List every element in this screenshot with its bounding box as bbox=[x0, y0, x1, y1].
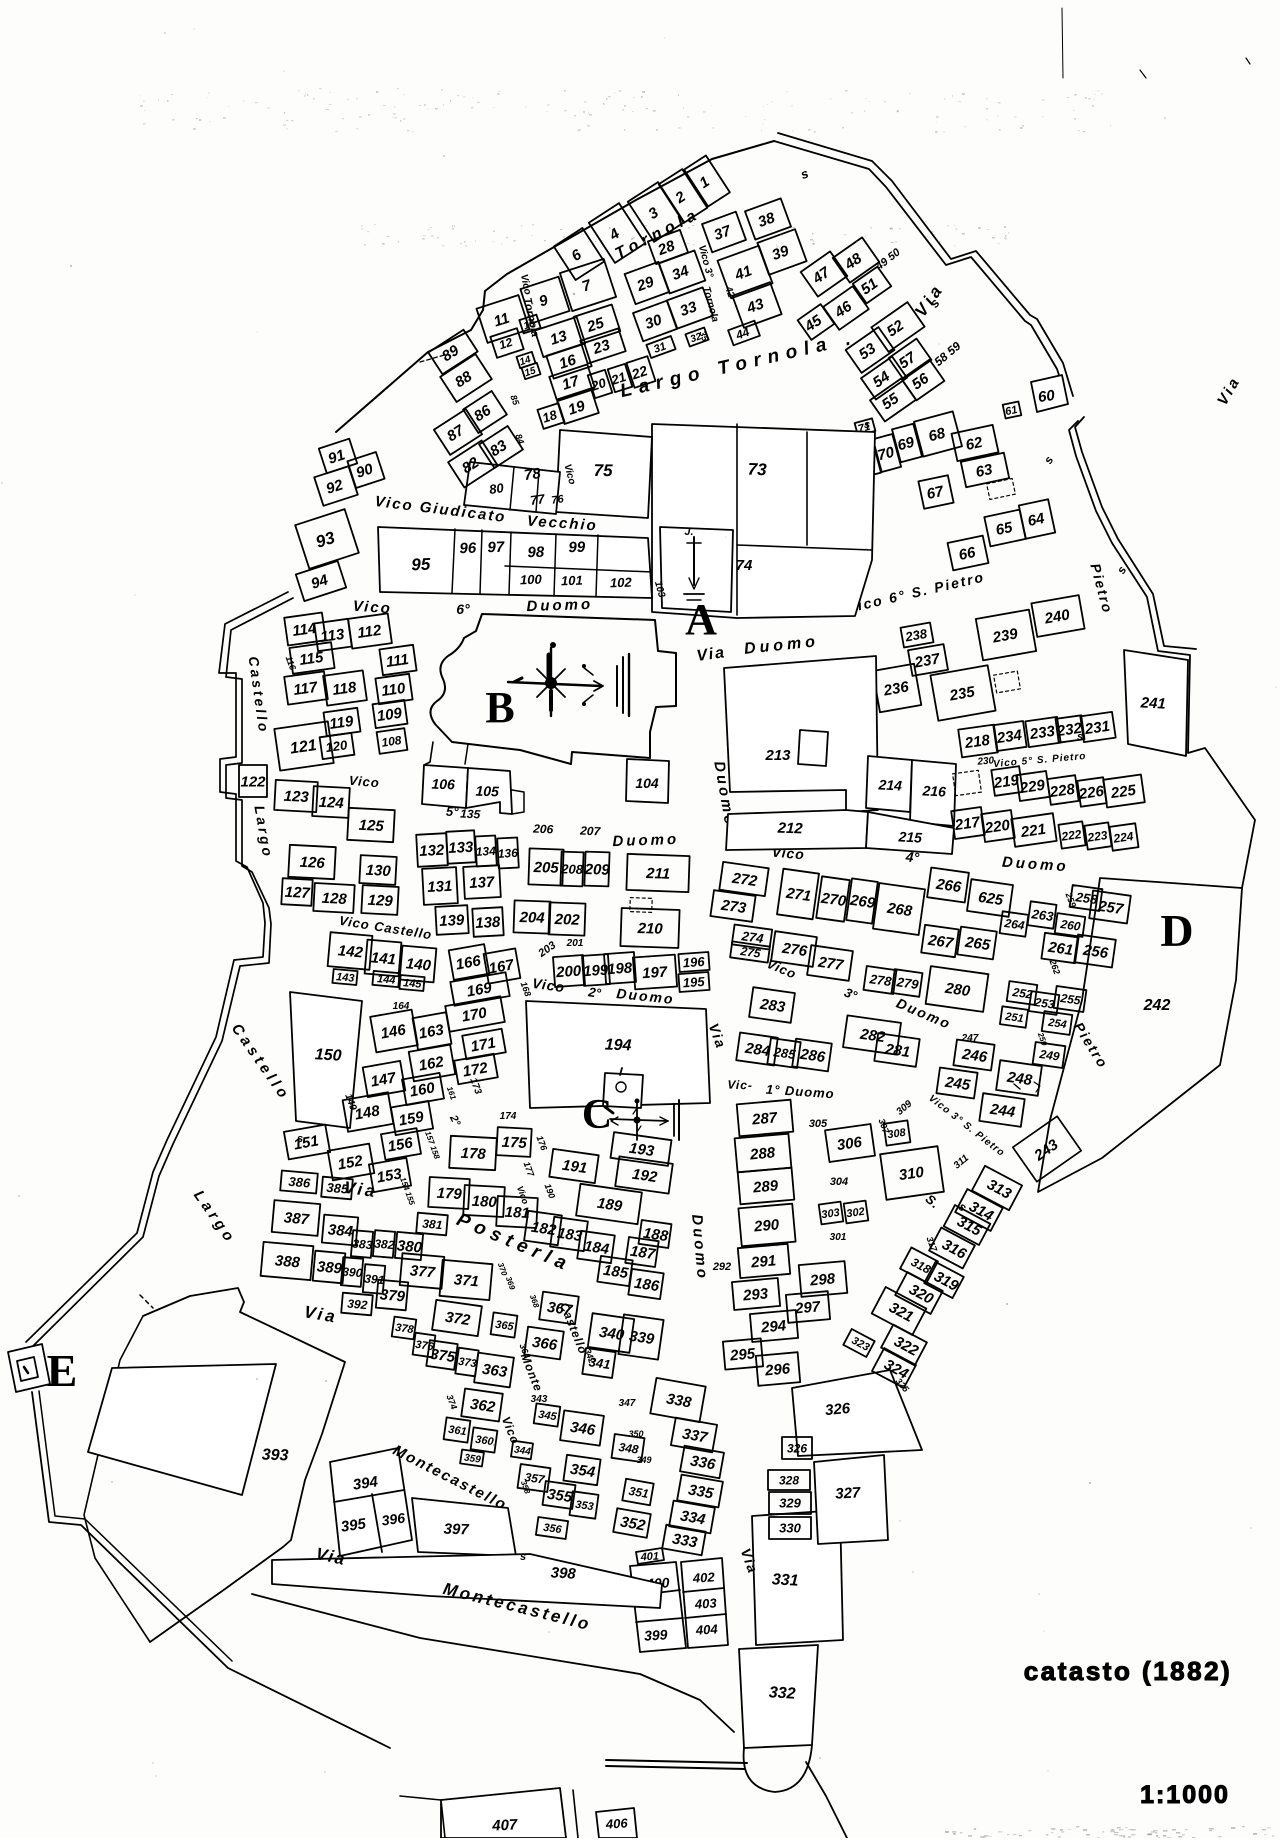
svg-text:404: 404 bbox=[695, 1621, 719, 1637]
svg-text:382: 382 bbox=[374, 1236, 395, 1252]
svg-text:D: D bbox=[1160, 905, 1193, 956]
svg-text:209: 209 bbox=[583, 861, 610, 879]
svg-text:s: s bbox=[864, 419, 870, 431]
svg-text:383: 383 bbox=[352, 1236, 373, 1252]
svg-text:261: 261 bbox=[1046, 939, 1074, 959]
svg-text:296: 296 bbox=[763, 1360, 791, 1379]
svg-text:179: 179 bbox=[436, 1185, 463, 1203]
svg-text:115: 115 bbox=[298, 649, 325, 669]
svg-text:255: 255 bbox=[1059, 991, 1082, 1008]
svg-text:264: 264 bbox=[1003, 916, 1026, 933]
svg-text:381: 381 bbox=[422, 1216, 443, 1232]
svg-text:134: 134 bbox=[475, 844, 496, 859]
svg-text:138: 138 bbox=[475, 914, 502, 932]
svg-text:387: 387 bbox=[283, 1209, 310, 1228]
svg-text:98: 98 bbox=[527, 544, 545, 562]
svg-text:123: 123 bbox=[283, 788, 310, 806]
svg-text:201: 201 bbox=[566, 938, 584, 949]
svg-text:355: 355 bbox=[546, 1486, 574, 1506]
svg-text:326: 326 bbox=[824, 1400, 851, 1419]
svg-text:200: 200 bbox=[555, 963, 583, 982]
svg-text:349: 349 bbox=[636, 1455, 651, 1465]
svg-text:197: 197 bbox=[642, 964, 669, 983]
svg-text:328: 328 bbox=[779, 1473, 799, 1487]
svg-text:329: 329 bbox=[779, 1496, 801, 1511]
svg-text:361: 361 bbox=[447, 1424, 467, 1438]
svg-text:174: 174 bbox=[500, 1111, 517, 1122]
svg-text:125: 125 bbox=[358, 817, 385, 835]
svg-text:241: 241 bbox=[1139, 694, 1166, 712]
svg-text:178: 178 bbox=[460, 1145, 487, 1163]
svg-text:215: 215 bbox=[897, 828, 922, 845]
svg-text:301: 301 bbox=[830, 1232, 847, 1243]
svg-text:60: 60 bbox=[1037, 387, 1057, 406]
svg-text:326: 326 bbox=[787, 1441, 807, 1455]
svg-text:289: 289 bbox=[751, 1177, 779, 1196]
svg-text:210: 210 bbox=[636, 920, 663, 938]
svg-text:192: 192 bbox=[631, 1166, 659, 1186]
svg-text:260: 260 bbox=[1059, 917, 1082, 934]
svg-text:366: 366 bbox=[531, 1334, 559, 1354]
svg-text:350: 350 bbox=[628, 1429, 643, 1439]
svg-text:186: 186 bbox=[633, 1275, 661, 1295]
svg-text:E: E bbox=[47, 1345, 78, 1396]
svg-text:164: 164 bbox=[393, 1001, 410, 1012]
svg-text:398: 398 bbox=[550, 1564, 577, 1582]
svg-text:102: 102 bbox=[610, 575, 633, 591]
svg-text:287: 287 bbox=[750, 1109, 778, 1128]
svg-text:140: 140 bbox=[405, 955, 432, 974]
svg-text:389: 389 bbox=[316, 1258, 343, 1277]
svg-text:193: 193 bbox=[628, 1140, 656, 1160]
svg-text:399: 399 bbox=[644, 1626, 668, 1643]
svg-text:343: 343 bbox=[531, 1394, 548, 1405]
svg-text:127: 127 bbox=[284, 884, 311, 902]
svg-text:78: 78 bbox=[523, 465, 543, 484]
svg-text:74: 74 bbox=[736, 557, 753, 574]
svg-text:112: 112 bbox=[356, 622, 383, 642]
svg-text:332: 332 bbox=[768, 1684, 796, 1702]
svg-text:143: 143 bbox=[336, 971, 355, 985]
svg-text:206: 206 bbox=[532, 821, 554, 836]
svg-text:205: 205 bbox=[532, 859, 559, 877]
svg-text:392: 392 bbox=[347, 1296, 368, 1312]
svg-text:128: 128 bbox=[321, 890, 348, 908]
svg-text:362: 362 bbox=[469, 1396, 497, 1416]
svg-text:117: 117 bbox=[292, 679, 319, 699]
svg-text:135: 135 bbox=[460, 806, 481, 821]
svg-text:214: 214 bbox=[877, 776, 902, 793]
svg-text:306: 306 bbox=[836, 1134, 864, 1154]
svg-text:331: 331 bbox=[771, 1571, 799, 1589]
svg-text:118: 118 bbox=[331, 679, 358, 699]
svg-text:247: 247 bbox=[961, 1033, 979, 1044]
svg-text:303: 303 bbox=[821, 1207, 841, 1221]
svg-text:131: 131 bbox=[427, 878, 453, 896]
svg-text:249: 249 bbox=[1038, 1047, 1061, 1064]
svg-text:100: 100 bbox=[520, 572, 543, 588]
svg-text:Vico: Vico bbox=[348, 773, 380, 791]
svg-text:124: 124 bbox=[318, 794, 345, 812]
svg-text:C: C bbox=[582, 1092, 612, 1138]
svg-text:344: 344 bbox=[513, 1445, 531, 1458]
svg-text:253: 253 bbox=[1033, 995, 1056, 1012]
svg-text:126: 126 bbox=[299, 854, 326, 872]
svg-text:305: 305 bbox=[809, 1118, 828, 1130]
svg-text:catasto (1882): catasto (1882) bbox=[1024, 1656, 1232, 1686]
svg-text:407: 407 bbox=[491, 1816, 519, 1834]
svg-text:275: 275 bbox=[739, 944, 762, 961]
svg-text:96: 96 bbox=[459, 540, 477, 558]
svg-text:281: 281 bbox=[883, 1041, 911, 1061]
svg-text:195: 195 bbox=[682, 974, 705, 991]
svg-text:120: 120 bbox=[325, 737, 349, 755]
svg-text:75: 75 bbox=[593, 461, 613, 480]
svg-text:204: 204 bbox=[518, 909, 545, 927]
svg-text:95: 95 bbox=[411, 555, 431, 575]
svg-text:290: 290 bbox=[752, 1216, 780, 1235]
svg-text:231: 231 bbox=[1083, 718, 1111, 738]
svg-text:394: 394 bbox=[352, 1473, 380, 1493]
svg-text:132: 132 bbox=[419, 842, 446, 860]
svg-text:208: 208 bbox=[560, 861, 584, 877]
svg-text:105: 105 bbox=[475, 783, 499, 800]
svg-text:346: 346 bbox=[569, 1419, 597, 1439]
svg-text:144: 144 bbox=[377, 973, 396, 987]
svg-text:288: 288 bbox=[748, 1144, 776, 1163]
svg-text:s: s bbox=[1077, 731, 1083, 743]
svg-text:395: 395 bbox=[340, 1515, 368, 1535]
svg-text:136: 136 bbox=[497, 846, 518, 861]
svg-text:347: 347 bbox=[619, 1398, 636, 1409]
svg-text:73: 73 bbox=[747, 460, 767, 480]
svg-text:222: 222 bbox=[1060, 827, 1083, 844]
svg-text:142: 142 bbox=[337, 942, 364, 961]
svg-text:110: 110 bbox=[380, 680, 407, 700]
svg-text:Duomo: Duomo bbox=[526, 596, 593, 615]
svg-text:291: 291 bbox=[749, 1252, 776, 1271]
svg-text:141: 141 bbox=[370, 949, 396, 968]
svg-text:137: 137 bbox=[469, 874, 496, 892]
svg-text:371: 371 bbox=[453, 1271, 479, 1290]
svg-text:213: 213 bbox=[764, 747, 791, 764]
svg-text:310: 310 bbox=[898, 1164, 926, 1184]
svg-text:297: 297 bbox=[793, 1298, 821, 1317]
svg-text:294: 294 bbox=[759, 1317, 787, 1336]
svg-text:109: 109 bbox=[376, 705, 404, 725]
svg-text:185: 185 bbox=[602, 1262, 630, 1282]
svg-text:293: 293 bbox=[741, 1285, 769, 1304]
svg-text:61: 61 bbox=[1004, 404, 1018, 418]
svg-text:97: 97 bbox=[487, 539, 505, 557]
svg-text:1:1000: 1:1000 bbox=[1140, 1781, 1230, 1809]
svg-text:180: 180 bbox=[471, 1193, 498, 1211]
svg-text:367: 367 bbox=[546, 1299, 574, 1319]
svg-text:212: 212 bbox=[776, 820, 803, 838]
svg-text:386: 386 bbox=[288, 1174, 312, 1191]
svg-text:377: 377 bbox=[409, 1262, 436, 1281]
svg-text:133: 133 bbox=[448, 839, 475, 857]
svg-text:202: 202 bbox=[553, 911, 580, 929]
svg-text:330: 330 bbox=[779, 1521, 801, 1536]
svg-text:388: 388 bbox=[274, 1252, 301, 1271]
svg-text:403: 403 bbox=[694, 1595, 718, 1611]
svg-text:198: 198 bbox=[607, 960, 634, 979]
svg-text:108: 108 bbox=[381, 733, 403, 750]
svg-text:175: 175 bbox=[501, 1134, 528, 1152]
svg-text:302: 302 bbox=[846, 1206, 866, 1220]
svg-text:77: 77 bbox=[529, 491, 546, 508]
svg-text:139: 139 bbox=[439, 912, 466, 930]
svg-text:363: 363 bbox=[481, 1361, 509, 1381]
svg-text:Duomo: Duomo bbox=[612, 831, 679, 850]
svg-text:327: 327 bbox=[835, 1484, 862, 1502]
svg-text:194: 194 bbox=[605, 1037, 632, 1055]
svg-text:223: 223 bbox=[1086, 828, 1109, 845]
svg-text:189: 189 bbox=[596, 1195, 624, 1215]
svg-text:150: 150 bbox=[314, 1046, 342, 1064]
svg-text:304: 304 bbox=[830, 1176, 848, 1188]
svg-text:406: 406 bbox=[605, 1815, 629, 1831]
svg-text:221: 221 bbox=[1019, 821, 1047, 841]
svg-text:384: 384 bbox=[327, 1221, 354, 1240]
svg-text:625: 625 bbox=[977, 889, 1005, 909]
svg-text:397: 397 bbox=[443, 1521, 469, 1539]
svg-text:390: 390 bbox=[342, 1264, 363, 1280]
svg-text:A: A bbox=[685, 595, 717, 644]
svg-text:216: 216 bbox=[921, 782, 946, 799]
svg-text:393: 393 bbox=[262, 1447, 289, 1465]
svg-text:373: 373 bbox=[457, 1356, 477, 1370]
svg-text:402: 402 bbox=[692, 1569, 716, 1585]
svg-text:s: s bbox=[297, 1133, 303, 1145]
svg-text:295: 295 bbox=[728, 1345, 756, 1364]
svg-text:375: 375 bbox=[429, 1346, 457, 1366]
svg-text:188: 188 bbox=[642, 1225, 670, 1245]
svg-text:130: 130 bbox=[365, 862, 392, 880]
svg-text:353: 353 bbox=[574, 1499, 594, 1513]
svg-text:99: 99 bbox=[568, 539, 586, 557]
svg-text:145: 145 bbox=[403, 977, 423, 991]
svg-text:129: 129 bbox=[367, 892, 394, 910]
svg-text:242: 242 bbox=[1143, 997, 1171, 1014]
svg-text:401: 401 bbox=[639, 1551, 659, 1564]
svg-text:230: 230 bbox=[976, 755, 995, 768]
svg-text:271: 271 bbox=[784, 885, 812, 905]
svg-text:379: 379 bbox=[379, 1286, 406, 1305]
svg-text:122: 122 bbox=[240, 773, 266, 790]
svg-text:B: B bbox=[485, 683, 514, 732]
svg-text:396: 396 bbox=[381, 1509, 407, 1528]
svg-text:385: 385 bbox=[326, 1180, 350, 1197]
svg-text:101: 101 bbox=[561, 573, 583, 589]
svg-text:s: s bbox=[520, 1551, 526, 1563]
svg-text:207: 207 bbox=[579, 823, 602, 838]
svg-text:211: 211 bbox=[645, 865, 671, 883]
svg-text:298: 298 bbox=[808, 1270, 836, 1289]
svg-text:106: 106 bbox=[431, 776, 455, 793]
svg-text:80: 80 bbox=[488, 480, 505, 497]
svg-text:111: 111 bbox=[385, 651, 410, 671]
svg-text:6°: 6° bbox=[456, 601, 470, 617]
svg-text:Vic-: Vic- bbox=[727, 1078, 753, 1093]
svg-text:292: 292 bbox=[712, 1261, 731, 1273]
svg-text:339: 339 bbox=[628, 1328, 656, 1348]
svg-text:354: 354 bbox=[569, 1461, 597, 1481]
svg-text:372: 372 bbox=[444, 1309, 472, 1329]
svg-text:224: 224 bbox=[1112, 829, 1135, 846]
svg-text:119: 119 bbox=[328, 713, 355, 733]
svg-text:104: 104 bbox=[635, 775, 659, 791]
svg-text:184: 184 bbox=[583, 1238, 611, 1258]
svg-text:196: 196 bbox=[682, 954, 705, 971]
svg-text:359: 359 bbox=[463, 1453, 481, 1466]
svg-text:191: 191 bbox=[561, 1157, 588, 1177]
svg-text:J.: J. bbox=[684, 526, 693, 538]
